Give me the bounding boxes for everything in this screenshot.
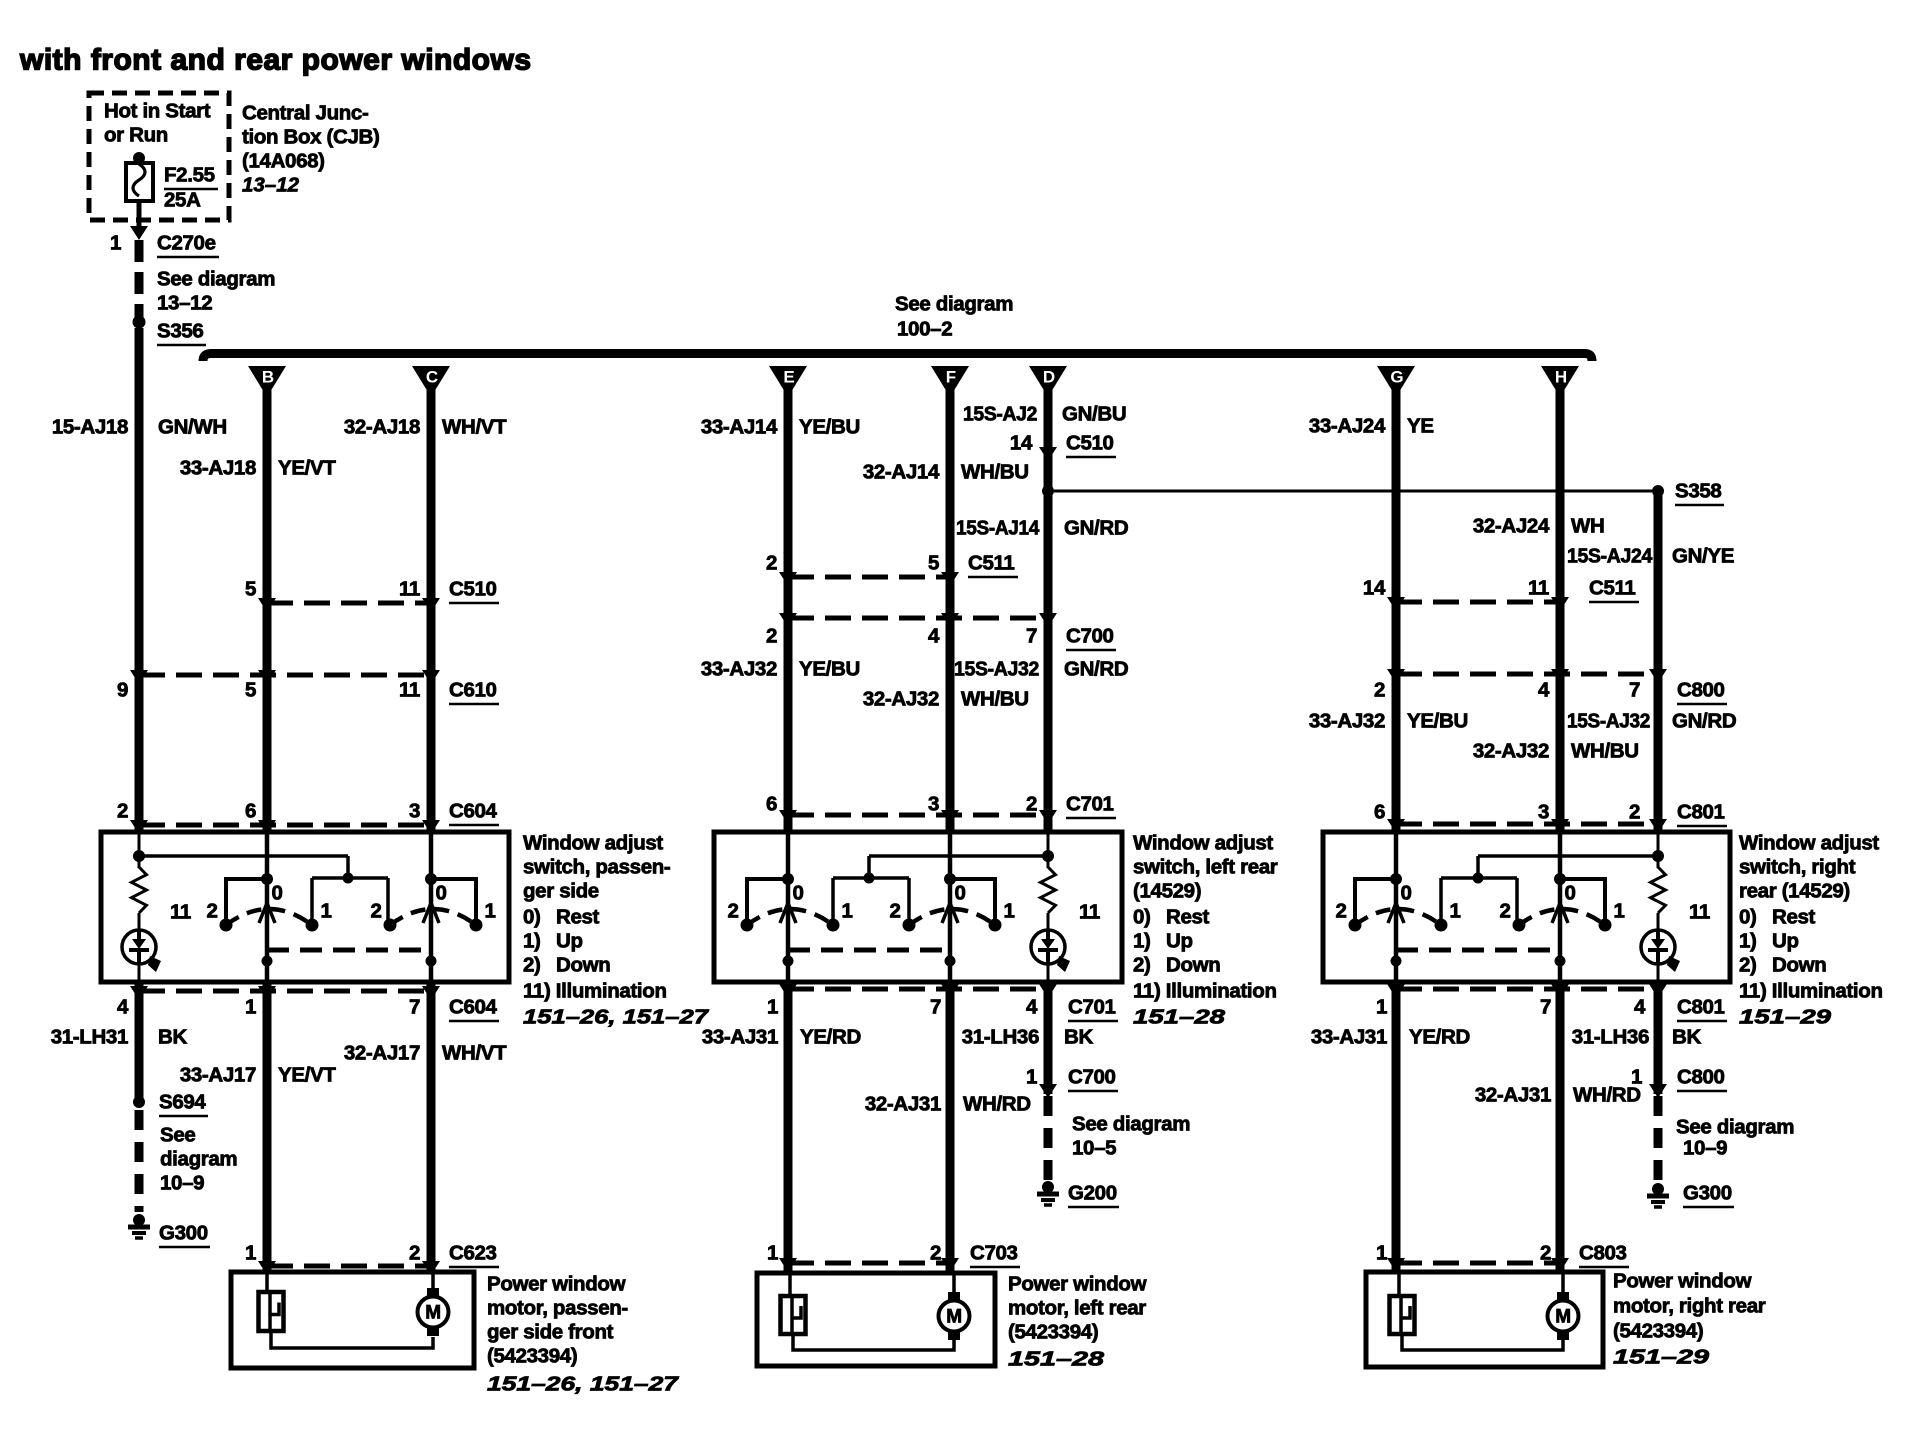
svg-text:Rest: Rest xyxy=(1772,906,1816,929)
svg-text:BK: BK xyxy=(1672,1026,1701,1049)
svg-text:tion Box (CJB): tion Box (CJB) xyxy=(242,126,379,149)
svg-text:Rest: Rest xyxy=(1166,906,1210,929)
svg-text:(5423394): (5423394) xyxy=(487,1345,577,1368)
svg-text:0): 0) xyxy=(1739,906,1757,929)
svg-text:151–26, 151–27: 151–26, 151–27 xyxy=(523,1006,710,1029)
svg-text:See: See xyxy=(160,1124,195,1147)
svg-text:diagram: diagram xyxy=(160,1148,237,1171)
svg-text:C511: C511 xyxy=(1589,577,1635,600)
svg-text:1: 1 xyxy=(1449,900,1460,923)
svg-text:2: 2 xyxy=(889,900,900,923)
svg-text:0: 0 xyxy=(792,882,803,905)
svg-text:1: 1 xyxy=(1613,900,1624,923)
svg-text:S358: S358 xyxy=(1675,480,1721,503)
svg-text:GN/YE: GN/YE xyxy=(1672,545,1734,568)
svg-text:(5423394): (5423394) xyxy=(1613,1320,1703,1343)
svg-text:2): 2) xyxy=(1739,954,1757,977)
svg-text:11: 11 xyxy=(1079,901,1100,924)
svg-text:33-AJ17: 33-AJ17 xyxy=(180,1064,256,1087)
svg-text:C: C xyxy=(426,368,438,387)
svg-text:See diagram: See diagram xyxy=(895,293,1013,316)
svg-text:32-AJ17: 32-AJ17 xyxy=(344,1042,420,1065)
svg-text:E: E xyxy=(783,368,794,387)
svg-text:3: 3 xyxy=(1538,801,1549,824)
svg-text:ger side front: ger side front xyxy=(487,1321,614,1344)
svg-text:BK: BK xyxy=(158,1026,187,1049)
svg-text:C604: C604 xyxy=(449,800,498,823)
svg-text:GN/BU: GN/BU xyxy=(1062,403,1126,426)
svg-text:0: 0 xyxy=(1400,882,1411,905)
svg-text:2: 2 xyxy=(766,552,777,575)
svg-text:0: 0 xyxy=(1564,882,1575,905)
svg-text:151–28: 151–28 xyxy=(1133,1006,1226,1029)
svg-text:14: 14 xyxy=(1363,577,1386,600)
svg-text:BK: BK xyxy=(1064,1026,1093,1049)
svg-text:C800: C800 xyxy=(1677,679,1725,702)
svg-text:31-LH31: 31-LH31 xyxy=(51,1026,128,1049)
svg-text:7: 7 xyxy=(1629,679,1640,702)
svg-text:1: 1 xyxy=(1376,1242,1387,1265)
svg-text:Down: Down xyxy=(1772,954,1826,977)
svg-text:6: 6 xyxy=(245,800,256,823)
svg-text:ger side: ger side xyxy=(523,880,599,903)
svg-text:YE/BU: YE/BU xyxy=(799,416,860,439)
svg-text:32-AJ32: 32-AJ32 xyxy=(1473,740,1549,763)
svg-text:0: 0 xyxy=(271,882,282,905)
svg-text:1: 1 xyxy=(110,232,121,255)
svg-text:G200: G200 xyxy=(1068,1182,1117,1205)
svg-text:9: 9 xyxy=(117,679,128,702)
svg-text:Power window: Power window xyxy=(1613,1270,1752,1293)
svg-text:32-AJ24: 32-AJ24 xyxy=(1473,515,1550,538)
svg-text:C701: C701 xyxy=(1068,996,1116,1019)
svg-text:S356: S356 xyxy=(157,320,203,343)
svg-text:1): 1) xyxy=(523,930,541,953)
svg-text:YE/RD: YE/RD xyxy=(1409,1026,1470,1049)
svg-text:4: 4 xyxy=(1026,996,1038,1019)
svg-text:C803: C803 xyxy=(1579,1242,1627,1265)
svg-text:C800: C800 xyxy=(1677,1066,1725,1089)
svg-text:See diagram: See diagram xyxy=(1676,1116,1794,1139)
svg-text:11: 11 xyxy=(1528,577,1549,600)
svg-text:33-AJ18: 33-AJ18 xyxy=(180,457,256,480)
svg-text:WH/VT: WH/VT xyxy=(442,1042,507,1065)
svg-text:GN/RD: GN/RD xyxy=(1672,710,1736,733)
svg-text:1: 1 xyxy=(841,900,852,923)
svg-text:C610: C610 xyxy=(449,679,497,702)
svg-text:C604: C604 xyxy=(449,996,498,1019)
svg-text:M: M xyxy=(425,1303,440,1324)
svg-text:11) Illumination: 11) Illumination xyxy=(1739,980,1883,1003)
svg-text:2: 2 xyxy=(1374,679,1385,702)
svg-text:4: 4 xyxy=(928,625,940,648)
svg-text:15S-AJ14: 15S-AJ14 xyxy=(956,517,1040,540)
svg-text:0: 0 xyxy=(435,882,446,905)
svg-text:motor, right rear: motor, right rear xyxy=(1613,1295,1766,1318)
svg-text:2: 2 xyxy=(1026,793,1037,816)
svg-text:Down: Down xyxy=(556,954,610,977)
svg-text:F2.55: F2.55 xyxy=(164,164,215,187)
svg-text:7: 7 xyxy=(930,996,941,1019)
svg-text:7: 7 xyxy=(409,996,420,1019)
svg-text:See diagram: See diagram xyxy=(157,268,275,291)
svg-text:motor, left rear: motor, left rear xyxy=(1008,1297,1146,1320)
svg-text:33-AJ32: 33-AJ32 xyxy=(1309,710,1385,733)
svg-text:S694: S694 xyxy=(159,1091,206,1114)
svg-text:switch, right: switch, right xyxy=(1739,856,1856,879)
svg-text:YE/VT: YE/VT xyxy=(278,457,336,480)
svg-text:0): 0) xyxy=(1133,906,1151,929)
svg-text:Central Junc-: Central Junc- xyxy=(242,102,368,125)
svg-text:151–29: 151–29 xyxy=(1739,1006,1832,1029)
svg-text:11: 11 xyxy=(399,679,420,702)
svg-text:Down: Down xyxy=(1166,954,1220,977)
svg-text:Power window: Power window xyxy=(1008,1273,1147,1296)
svg-text:15S-AJ24: 15S-AJ24 xyxy=(1567,545,1653,568)
svg-text:151–29: 151–29 xyxy=(1613,1346,1710,1369)
svg-text:2: 2 xyxy=(727,900,738,923)
svg-text:D: D xyxy=(1043,368,1055,387)
svg-text:B: B xyxy=(262,368,274,387)
svg-text:100–2: 100–2 xyxy=(897,318,952,341)
svg-text:11: 11 xyxy=(1689,901,1710,924)
svg-text:1: 1 xyxy=(320,900,331,923)
svg-text:14: 14 xyxy=(1010,432,1033,455)
svg-text:2: 2 xyxy=(206,900,217,923)
svg-text:6: 6 xyxy=(1374,801,1385,824)
svg-text:2): 2) xyxy=(523,954,541,977)
svg-text:Up: Up xyxy=(556,930,583,953)
svg-text:1: 1 xyxy=(245,996,256,1019)
svg-text:151–26, 151–27: 151–26, 151–27 xyxy=(487,1373,680,1396)
svg-text:4: 4 xyxy=(117,996,129,1019)
svg-text:YE/BU: YE/BU xyxy=(1407,710,1468,733)
svg-text:or Run: or Run xyxy=(104,124,168,147)
svg-text:2): 2) xyxy=(1133,954,1151,977)
svg-text:(14A068): (14A068) xyxy=(242,150,325,173)
svg-text:Power window: Power window xyxy=(487,1273,626,1296)
svg-text:11: 11 xyxy=(170,901,191,924)
svg-text:7: 7 xyxy=(1026,625,1037,648)
svg-text:2: 2 xyxy=(1499,900,1510,923)
svg-text:Window adjust: Window adjust xyxy=(1133,832,1273,855)
svg-text:WH/VT: WH/VT xyxy=(442,416,507,439)
svg-text:5: 5 xyxy=(245,679,256,702)
svg-text:2: 2 xyxy=(1629,801,1640,824)
svg-text:3: 3 xyxy=(928,793,939,816)
svg-text:C511: C511 xyxy=(968,552,1014,575)
svg-text:Window adjust: Window adjust xyxy=(1739,832,1879,855)
svg-text:YE: YE xyxy=(1407,415,1434,438)
svg-text:10–9: 10–9 xyxy=(160,1172,204,1195)
svg-text:4: 4 xyxy=(1634,996,1646,1019)
svg-text:YE/VT: YE/VT xyxy=(278,1064,336,1087)
svg-text:10–9: 10–9 xyxy=(1683,1137,1727,1160)
svg-text:rear (14529): rear (14529) xyxy=(1739,880,1850,903)
svg-text:10–5: 10–5 xyxy=(1072,1137,1116,1160)
svg-text:3: 3 xyxy=(409,800,420,823)
svg-text:1: 1 xyxy=(1631,1066,1642,1089)
svg-text:33-AJ31: 33-AJ31 xyxy=(702,1026,778,1049)
svg-text:15-AJ18: 15-AJ18 xyxy=(52,416,128,439)
svg-text:G: G xyxy=(1390,368,1403,387)
svg-text:Up: Up xyxy=(1166,930,1193,953)
svg-text:H: H xyxy=(1555,368,1567,387)
svg-text:2: 2 xyxy=(766,625,777,648)
svg-text:32-AJ32: 32-AJ32 xyxy=(863,688,939,711)
svg-text:C700: C700 xyxy=(1068,1066,1116,1089)
svg-text:13–12: 13–12 xyxy=(242,174,300,197)
svg-text:(14529): (14529) xyxy=(1133,880,1201,903)
svg-text:7: 7 xyxy=(1540,996,1551,1019)
svg-text:C701: C701 xyxy=(1066,793,1114,816)
svg-text:F: F xyxy=(946,368,956,387)
svg-text:5: 5 xyxy=(245,578,256,601)
svg-text:32-AJ18: 32-AJ18 xyxy=(344,416,420,439)
svg-text:C801: C801 xyxy=(1677,996,1725,1019)
svg-text:32-AJ14: 32-AJ14 xyxy=(863,461,940,484)
svg-text:WH/BU: WH/BU xyxy=(961,461,1029,484)
svg-text:GN/WH: GN/WH xyxy=(158,416,227,439)
svg-text:31-LH36: 31-LH36 xyxy=(962,1026,1039,1049)
svg-text:1: 1 xyxy=(1376,996,1387,1019)
svg-text:Up: Up xyxy=(1772,930,1799,953)
svg-text:motor, passen-: motor, passen- xyxy=(487,1297,628,1320)
svg-text:31-LH36: 31-LH36 xyxy=(1572,1026,1649,1049)
svg-text:6: 6 xyxy=(766,793,777,816)
svg-text:1: 1 xyxy=(767,1242,778,1265)
svg-text:with front and rear power wind: with front and rear power windows xyxy=(19,44,532,77)
svg-text:1: 1 xyxy=(1026,1066,1037,1089)
svg-text:15S-AJ32: 15S-AJ32 xyxy=(1567,710,1650,733)
svg-text:33-AJ24: 33-AJ24 xyxy=(1309,415,1386,438)
svg-text:C510: C510 xyxy=(449,578,497,601)
svg-text:32-AJ31: 32-AJ31 xyxy=(865,1093,941,1116)
svg-text:GN/RD: GN/RD xyxy=(1064,517,1128,540)
svg-text:0: 0 xyxy=(954,882,965,905)
svg-text:WH/RD: WH/RD xyxy=(963,1093,1031,1116)
svg-text:2: 2 xyxy=(930,1242,941,1265)
svg-text:WH/BU: WH/BU xyxy=(961,688,1029,711)
svg-text:33-AJ14: 33-AJ14 xyxy=(701,416,778,439)
svg-text:Rest: Rest xyxy=(556,906,600,929)
svg-text:C703: C703 xyxy=(970,1242,1018,1265)
svg-text:1: 1 xyxy=(1003,900,1014,923)
svg-text:WH: WH xyxy=(1571,515,1604,538)
svg-text:2: 2 xyxy=(117,800,128,823)
svg-text:33-AJ31: 33-AJ31 xyxy=(1311,1026,1387,1049)
svg-text:2: 2 xyxy=(1335,900,1346,923)
svg-text:32-AJ31: 32-AJ31 xyxy=(1475,1084,1551,1107)
svg-text:switch, left rear: switch, left rear xyxy=(1133,856,1278,879)
svg-text:11) Illumination: 11) Illumination xyxy=(523,980,667,1003)
svg-text:See diagram: See diagram xyxy=(1072,1113,1190,1136)
svg-text:M: M xyxy=(946,1307,961,1328)
svg-text:13–12: 13–12 xyxy=(157,292,212,315)
svg-text:YE/BU: YE/BU xyxy=(799,658,860,681)
svg-text:0): 0) xyxy=(523,906,541,929)
svg-text:2: 2 xyxy=(409,1242,420,1265)
svg-text:1: 1 xyxy=(484,900,495,923)
svg-text:switch, passen-: switch, passen- xyxy=(523,856,670,879)
svg-text:1: 1 xyxy=(767,996,778,1019)
svg-text:(5423394): (5423394) xyxy=(1008,1321,1098,1344)
svg-text:4: 4 xyxy=(1538,679,1550,702)
svg-text:GN/RD: GN/RD xyxy=(1064,658,1128,681)
svg-text:G300: G300 xyxy=(159,1222,208,1245)
svg-text:M: M xyxy=(1555,1307,1570,1328)
svg-text:WH/BU: WH/BU xyxy=(1571,740,1639,763)
svg-text:C700: C700 xyxy=(1066,625,1114,648)
svg-text:G300: G300 xyxy=(1683,1182,1732,1205)
svg-text:15S-AJ32: 15S-AJ32 xyxy=(954,658,1039,681)
svg-text:15S-AJ2: 15S-AJ2 xyxy=(963,403,1037,426)
svg-text:C270e: C270e xyxy=(157,232,216,255)
svg-text:1: 1 xyxy=(245,1242,256,1265)
svg-text:C623: C623 xyxy=(449,1242,497,1265)
svg-text:1): 1) xyxy=(1739,930,1757,953)
svg-text:151–28: 151–28 xyxy=(1008,1348,1105,1371)
svg-text:C801: C801 xyxy=(1677,801,1725,824)
svg-text:11) Illumination: 11) Illumination xyxy=(1133,980,1277,1003)
svg-text:5: 5 xyxy=(928,552,939,575)
svg-text:2: 2 xyxy=(370,900,381,923)
svg-text:25A: 25A xyxy=(164,189,201,212)
svg-text:Hot in Start: Hot in Start xyxy=(104,100,211,123)
svg-text:1): 1) xyxy=(1133,930,1151,953)
svg-text:33-AJ32: 33-AJ32 xyxy=(701,658,777,681)
svg-text:11: 11 xyxy=(399,578,420,601)
svg-text:C510: C510 xyxy=(1066,432,1114,455)
svg-text:Window adjust: Window adjust xyxy=(523,832,663,855)
svg-text:YE/RD: YE/RD xyxy=(800,1026,861,1049)
svg-text:2: 2 xyxy=(1540,1242,1551,1265)
